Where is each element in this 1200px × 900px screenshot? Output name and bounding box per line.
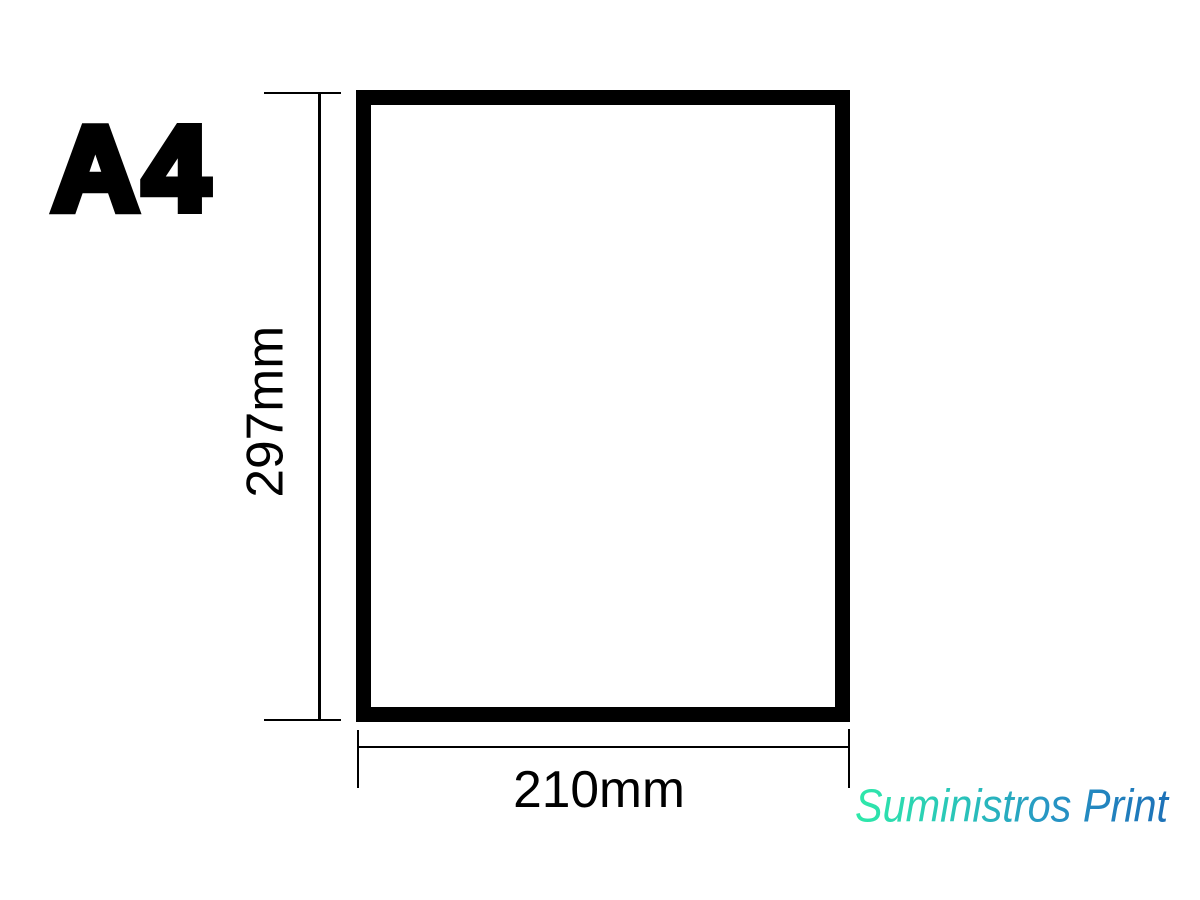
svg-text:Suministros Print: Suministros Print [855,780,1170,832]
